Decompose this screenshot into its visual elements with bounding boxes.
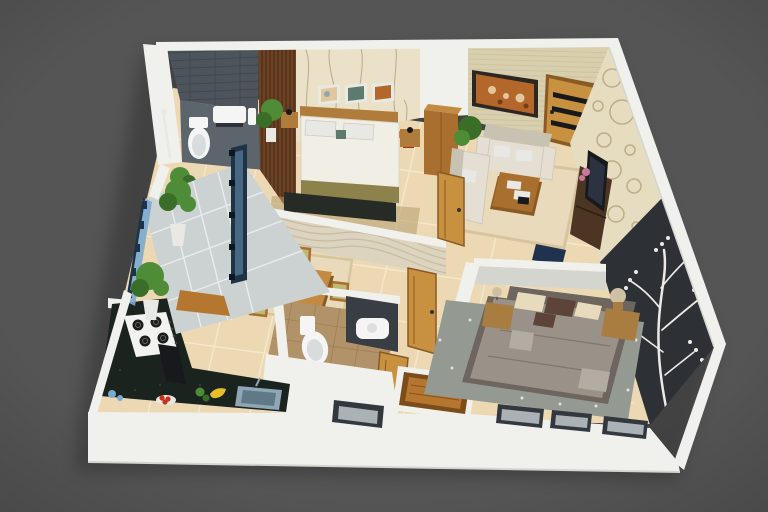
wall-pictures [318, 82, 394, 105]
nightstand-right [400, 127, 420, 147]
toilet-icon [188, 117, 210, 159]
floor-plan-render [0, 0, 768, 512]
master-bedroom-door-icon [438, 172, 464, 246]
washbasin-icon [213, 106, 246, 127]
floor-plan-canvas [0, 0, 768, 512]
towel-icon [248, 108, 256, 125]
master-bed-icon [300, 106, 399, 203]
washbasin2-icon [356, 318, 389, 339]
bedroom2-door-icon [408, 268, 436, 354]
coffee-table-icon [490, 172, 542, 216]
glass-partition-icon [229, 144, 247, 284]
